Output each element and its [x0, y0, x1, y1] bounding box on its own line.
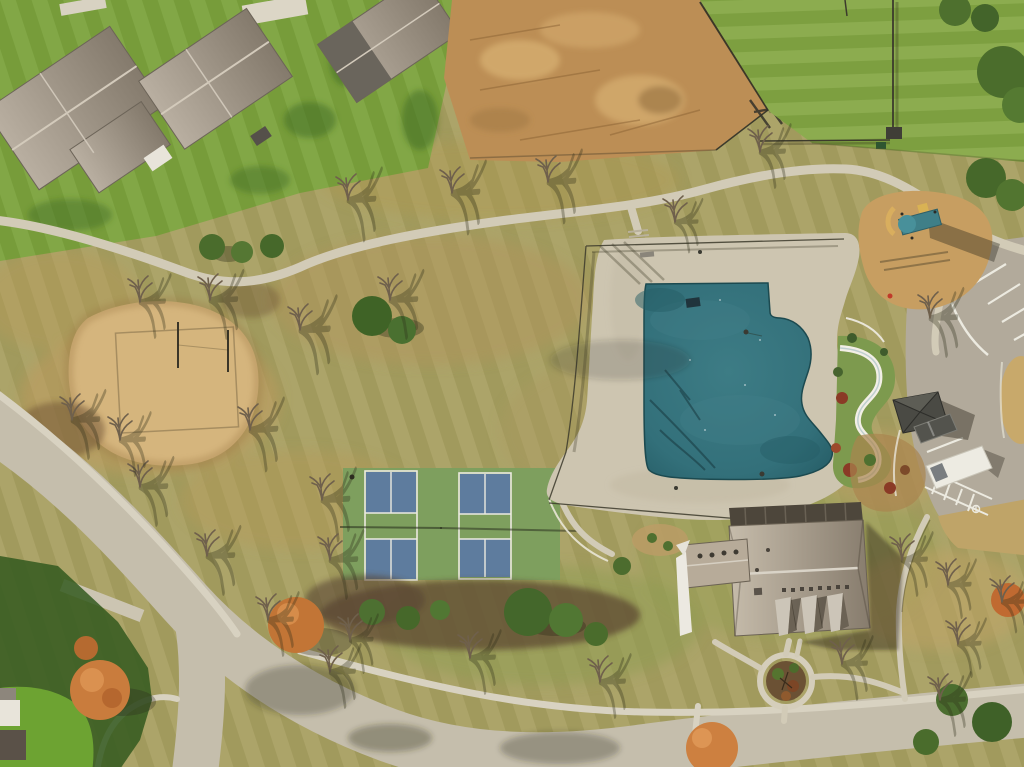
landscape-bed — [632, 524, 688, 556]
clubhouse-west-wing — [683, 539, 750, 588]
clubhouse-walk — [797, 641, 800, 655]
house-roof-edge — [0, 730, 26, 760]
aerial-photo-canvas — [0, 0, 1024, 767]
house-wall — [0, 700, 20, 726]
street-branch — [195, 612, 202, 767]
net-shadow — [340, 527, 442, 528]
pickleball-courts — [340, 468, 578, 580]
shrub — [647, 533, 657, 543]
clubhouse-dormers — [775, 593, 849, 636]
fire-hydrant — [888, 294, 893, 299]
house-roof-edge — [0, 688, 16, 702]
utility-shed — [886, 127, 902, 139]
chimney — [754, 588, 762, 595]
circular-planter — [766, 661, 806, 701]
shrub — [663, 541, 673, 551]
aerial-photo — [0, 0, 1024, 767]
